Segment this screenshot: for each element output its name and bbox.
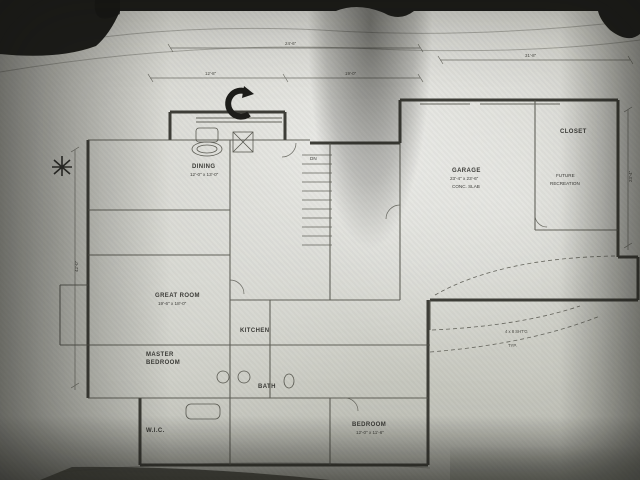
dim-top-left: 24'-6" xyxy=(285,41,297,46)
left-fold-shadow xyxy=(0,0,170,480)
background-edges xyxy=(0,0,640,480)
center-fold-shadow xyxy=(290,0,450,380)
dimension-lines xyxy=(71,44,633,390)
garage-note: CONC. SLAB xyxy=(452,184,480,189)
great-room-size: 19'-6" x 18'-0" xyxy=(158,301,187,306)
paper-wrinkle-lines xyxy=(0,20,640,472)
top-background-edge xyxy=(0,0,640,56)
note-2: TYP. xyxy=(508,343,517,348)
floor-plan-drawing: 24'-6" 31'-8" 12'-8" 19'-0" 42'-0" 23'-4… xyxy=(0,0,640,480)
bathtub xyxy=(186,404,220,419)
curled-sheet-corner xyxy=(95,0,120,19)
bedroom-size: 12'-0" x 11'-6" xyxy=(356,430,384,435)
great-room-label: GREAT ROOM xyxy=(155,293,200,299)
paper-sheet xyxy=(0,0,640,480)
dim-mid-b: 19'-0" xyxy=(345,71,357,76)
stairs-label: DN xyxy=(310,156,317,161)
bottom-paper-edge-shadow xyxy=(40,467,330,480)
dim-mid-a: 12'-8" xyxy=(205,71,217,76)
note-1: 4 x 8 SHT'G xyxy=(505,329,528,334)
bottom-shadow xyxy=(0,416,640,480)
dining-size: 12'-0" x 13'-0" xyxy=(190,172,219,177)
right-edge-shadow xyxy=(560,0,640,480)
master-label: MASTER xyxy=(146,352,174,358)
fixtures xyxy=(186,128,294,419)
north-arrow-icon xyxy=(228,86,254,117)
wic-label: W.I.C. xyxy=(146,428,165,434)
exterior-walls xyxy=(88,100,638,465)
stair-treads xyxy=(302,155,332,245)
dim-left-side: 42'-0" xyxy=(74,260,79,272)
dim-top-right: 31'-8" xyxy=(525,53,537,58)
island-oval xyxy=(192,142,222,156)
bath-label: BATH xyxy=(258,384,276,390)
door-arcs xyxy=(230,143,547,411)
bedroom-label: BEDROOM xyxy=(352,422,386,428)
fireplace-box xyxy=(233,132,253,152)
dim-right-side: 23'-4" xyxy=(628,170,633,182)
table-surface-corner xyxy=(450,446,640,480)
future-room-label: FUTURE xyxy=(556,173,575,178)
garage-label: GARAGE xyxy=(452,168,481,174)
blueprint-photo: 24'-6" 31'-8" 12'-8" 19'-0" 42'-0" 23'-4… xyxy=(0,0,640,480)
master-label2: BEDROOM xyxy=(146,360,180,366)
garage-size: 23'-4" x 23'-6" xyxy=(450,176,479,181)
photo-vignette xyxy=(0,0,640,480)
sink-left xyxy=(217,371,229,383)
interior-walls xyxy=(60,100,618,465)
shrub-icon xyxy=(52,156,72,176)
future-room-label2: RECREATION xyxy=(550,181,580,186)
dining-label: DINING xyxy=(192,164,215,170)
toilet xyxy=(284,374,294,388)
sink-right xyxy=(238,371,250,383)
photo-grain xyxy=(0,0,640,480)
kitchen-label: KITCHEN xyxy=(240,328,269,334)
driveway-curves xyxy=(430,256,615,352)
closet-label: CLOSET xyxy=(560,129,587,135)
